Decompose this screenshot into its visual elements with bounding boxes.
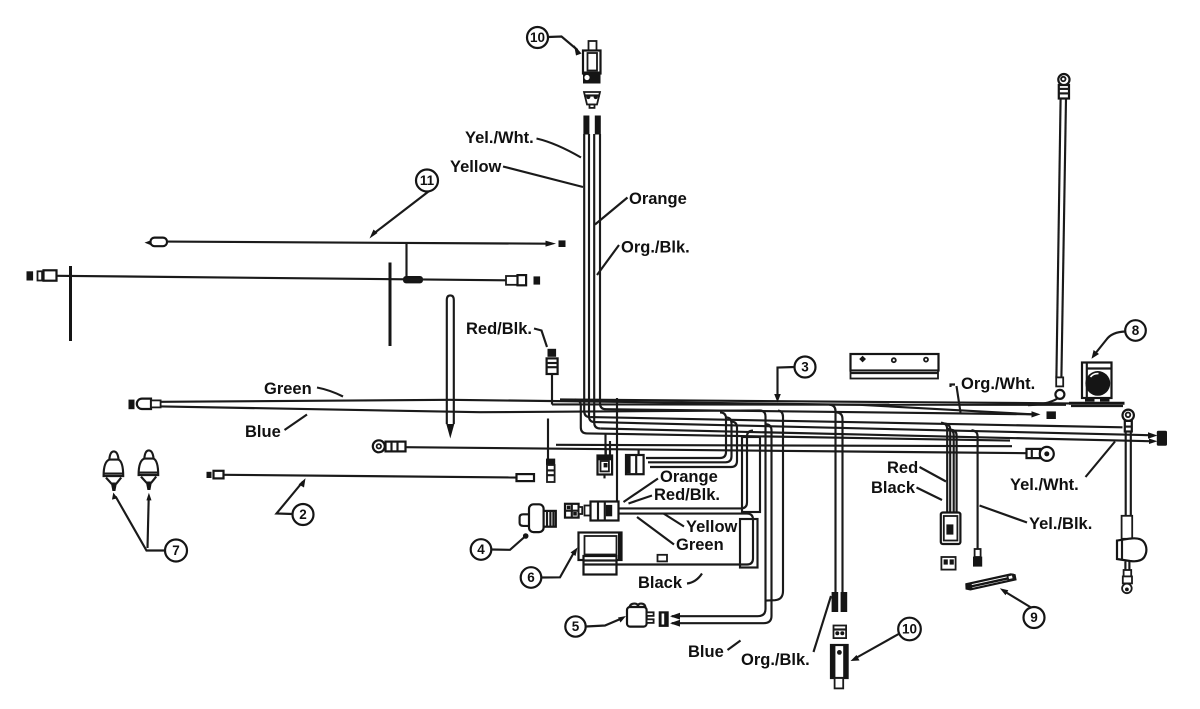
svg-text:10: 10 [902, 622, 917, 637]
svg-text:5: 5 [572, 619, 580, 634]
svg-text:Yel./Wht.: Yel./Wht. [465, 129, 534, 147]
svg-text:Org./Blk.: Org./Blk. [741, 651, 810, 669]
svg-text:9: 9 [1030, 610, 1038, 625]
svg-text:Yellow: Yellow [450, 158, 502, 176]
svg-text:Orange: Orange [629, 190, 687, 208]
svg-text:10: 10 [530, 30, 545, 45]
svg-text:Green: Green [676, 536, 724, 554]
svg-text:Red/Blk.: Red/Blk. [466, 320, 532, 338]
svg-text:3: 3 [801, 360, 809, 375]
svg-text:Blue: Blue [245, 423, 281, 441]
svg-text:11: 11 [420, 173, 435, 188]
svg-text:2: 2 [299, 507, 307, 522]
svg-text:Org./Wht.: Org./Wht. [961, 375, 1035, 393]
svg-text:7: 7 [172, 543, 180, 558]
svg-text:Yel./Blk.: Yel./Blk. [1029, 515, 1092, 533]
svg-text:Blue: Blue [688, 643, 724, 661]
svg-text:8: 8 [1132, 323, 1140, 338]
svg-text:Yel./Wht.: Yel./Wht. [1010, 476, 1079, 494]
svg-text:Red/Blk.: Red/Blk. [654, 486, 720, 504]
svg-text:6: 6 [527, 570, 535, 585]
svg-text:Black: Black [871, 479, 916, 497]
svg-text:Black: Black [638, 574, 683, 592]
svg-text:Yellow: Yellow [686, 518, 738, 536]
svg-text:Red: Red [887, 459, 918, 477]
svg-text:4: 4 [477, 542, 485, 557]
svg-text:Green: Green [264, 380, 312, 398]
svg-text:Org./Blk.: Org./Blk. [621, 239, 690, 257]
svg-text:Orange: Orange [660, 468, 718, 486]
